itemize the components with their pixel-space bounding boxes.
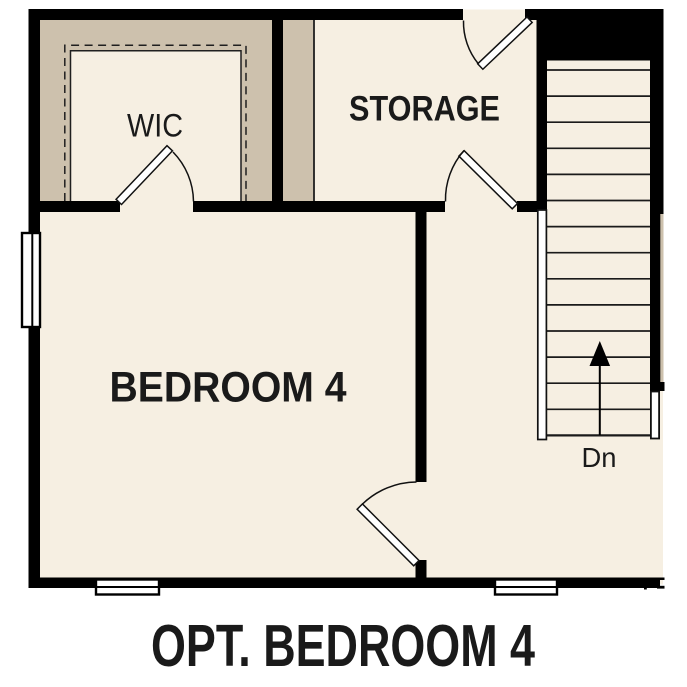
svg-text:STORAGE: STORAGE	[349, 90, 500, 129]
svg-text:OPT. BEDROOM 4: OPT. BEDROOM 4	[151, 613, 535, 679]
svg-text:Dn: Dn	[582, 442, 617, 473]
svg-text:BEDROOM 4: BEDROOM 4	[110, 364, 347, 412]
svg-text:WIC: WIC	[127, 108, 183, 144]
